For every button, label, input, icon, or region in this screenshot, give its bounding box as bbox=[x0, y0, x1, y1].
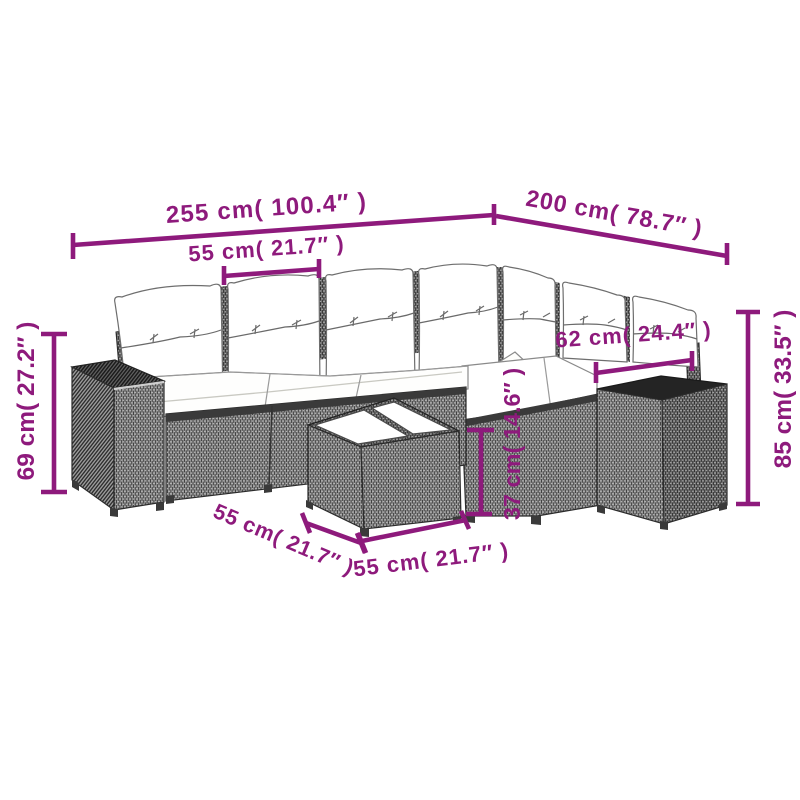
svg-text:55 cm( 21.7″ ): 55 cm( 21.7″ ) bbox=[352, 538, 511, 582]
svg-text:37 cm( 14.6″ ): 37 cm( 14.6″ ) bbox=[499, 368, 525, 520]
svg-text:200 cm( 78.7″ ): 200 cm( 78.7″ ) bbox=[524, 185, 705, 242]
svg-text:255 cm( 100.4″ ): 255 cm( 100.4″ ) bbox=[165, 188, 368, 229]
svg-text:85 cm( 33.5″ ): 85 cm( 33.5″ ) bbox=[770, 310, 797, 469]
svg-text:69 cm( 27.2″ ): 69 cm( 27.2″ ) bbox=[13, 322, 40, 481]
